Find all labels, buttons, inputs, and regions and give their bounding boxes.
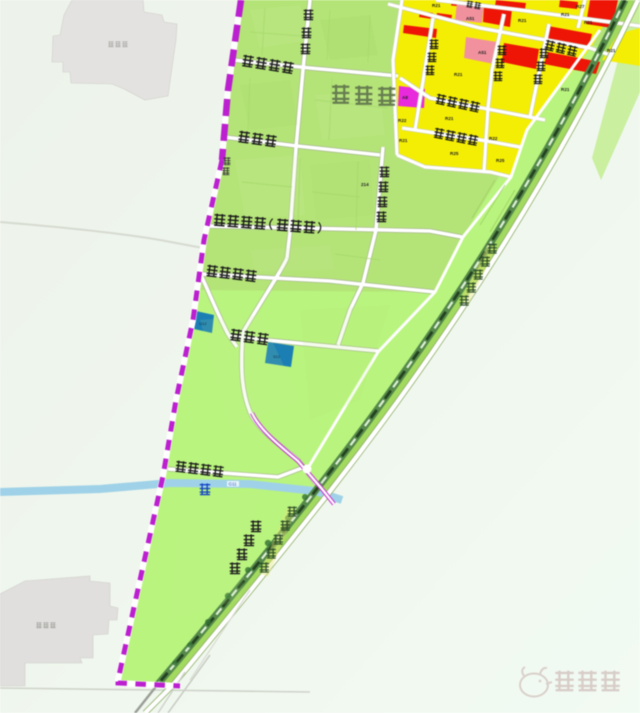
svg-text:A51: A51: [478, 50, 487, 55]
svg-text:A8: A8: [402, 95, 408, 100]
svg-text:R21: R21: [561, 87, 570, 92]
svg-text:R21: R21: [432, 3, 441, 8]
svg-text:214: 214: [361, 182, 369, 187]
svg-text:R21: R21: [445, 116, 454, 121]
svg-text:R27: R27: [576, 4, 585, 9]
svg-text:R21: R21: [561, 12, 570, 17]
svg-text:R21: R21: [454, 72, 463, 77]
svg-text:R21: R21: [518, 18, 527, 23]
svg-text:R21: R21: [584, 20, 593, 25]
svg-text:G12: G12: [199, 321, 207, 326]
svg-text:R22: R22: [398, 118, 407, 123]
svg-text:R22: R22: [489, 136, 498, 141]
svg-text:R25: R25: [496, 158, 505, 163]
svg-text:A51: A51: [466, 16, 475, 21]
svg-text:R25: R25: [450, 151, 459, 156]
svg-text:R21: R21: [399, 138, 408, 143]
svg-text:G11: G11: [229, 482, 238, 487]
svg-text:R21: R21: [607, 48, 616, 53]
svg-text:S12: S12: [273, 354, 281, 359]
